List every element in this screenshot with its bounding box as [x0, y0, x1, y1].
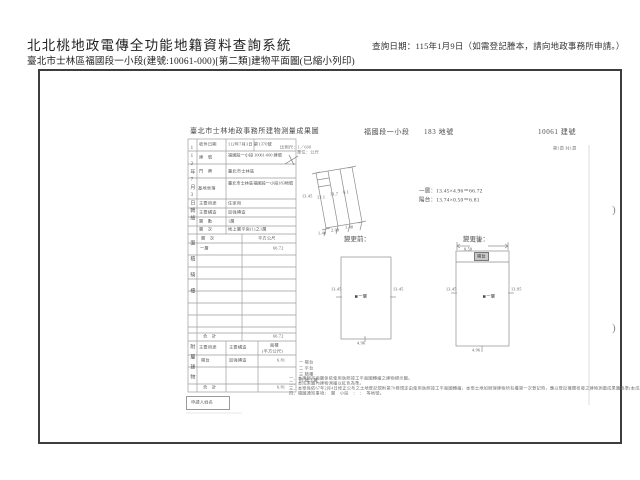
annex-use: 陽台 — [201, 358, 210, 363]
form-strip-area: 面積騎樓 — [189, 240, 195, 304]
form-row-value: 加強磚造 — [228, 210, 246, 215]
doc-building-number: 10061 建號 — [538, 127, 576, 137]
annex-header-area-unit: (平方公尺) — [262, 349, 283, 354]
after-dim-left: 13.45 — [446, 287, 457, 292]
annex-structure: 加強磚造 — [229, 358, 247, 363]
after-balcony-label: 陽台 — [477, 254, 486, 259]
before-floor-label: 一層 — [355, 294, 367, 299]
page-curl-mark: ) — [612, 322, 616, 334]
plot-dim-left: 13.45 — [302, 194, 313, 199]
form-row-value: 地上層平房(1)之1層 — [228, 227, 267, 232]
page-note: 第1頁 共1頁 — [553, 146, 577, 151]
doc-land-number: 183 地號 — [424, 127, 454, 137]
doc-title: 臺北市士林地政事務所建物測量成果圖 — [190, 126, 319, 136]
area-total-value: 66.72 — [273, 334, 284, 339]
page-curl-mark: ) — [612, 204, 616, 216]
form-row-value: 福國段一小段 10061-000 建號 — [228, 153, 295, 158]
floor-marker — [483, 295, 486, 298]
footnote-line: 一、本建物平面圖係依使用執照竣工平面圖轉繪之建物標示圖。 — [289, 376, 412, 381]
form-row-value: 112年7月3日 第1370號 — [228, 142, 272, 147]
annex-header-use: 主要用途 — [199, 345, 217, 350]
before-dim-left: 13.45 — [331, 287, 342, 292]
plot-bottom-dim: 1.48 — [345, 225, 353, 230]
system-title: 北北桃地政電傳全功能地籍資料查詢系統 — [27, 34, 292, 54]
form-row-value: 1層 — [228, 219, 235, 224]
form-row-label: 建 號 — [199, 155, 212, 160]
after-dim-bottom: 4.96 — [472, 348, 480, 353]
annex-header-area: 面積 — [270, 343, 279, 348]
area-calc-line: 陽台：13.74×0.50＝6.81 — [419, 197, 480, 203]
scale-note: 比例尺：1／600 — [280, 145, 311, 150]
plot-inner-dim: 13.1 — [317, 195, 325, 200]
area-floor-label: 一層 — [200, 246, 209, 251]
plot-inner-dim: 6.1 — [343, 190, 349, 195]
form-row-label: 層 次 — [199, 227, 212, 232]
area-total-label: 合 計 — [203, 334, 216, 339]
before-dim-right: 13.45 — [393, 287, 404, 292]
query-date: 查詢日期：115年1月9日（如需登記謄本，請向地政事務所申請。） — [372, 40, 625, 52]
form-row-label: 層 數 — [199, 219, 212, 224]
form-row-label: 主要用途 — [199, 201, 217, 206]
after-floor-label: 一層 — [483, 294, 495, 299]
form-row-value: 臺北市士林區福國段一小段183地號 — [228, 181, 295, 186]
applicant-label: 申請人姓名 — [191, 400, 213, 405]
annex-area: 6.81 — [277, 358, 285, 363]
after-dim-top: 4.96 — [473, 239, 481, 244]
applicant-box: 申請人姓名 — [186, 396, 230, 410]
annex-header-structure: 主要構造 — [229, 345, 247, 350]
page: 北北桃地政電傳全功能地籍資料查詢系統 查詢日期：115年1月9日（如需登記謄本，… — [0, 0, 640, 480]
footnote-line: 四、隨圖通知事項： 層 小段 ： ： 等地號。 — [289, 391, 384, 396]
form-row-label: 主要構造 — [199, 210, 217, 215]
plot-bottom-dim: 1.40 — [318, 231, 326, 236]
form-strip-annex: 附屬建物 — [189, 344, 195, 384]
area-calc-line: 一層：13.45×4.96＝66.72 — [419, 188, 483, 194]
form-row-value: 住家用 — [228, 201, 241, 206]
before-label: 變更前： — [344, 233, 370, 243]
after-dim-top2: 0.50 — [464, 247, 472, 252]
area-header-unit: 平方公尺 — [258, 236, 276, 241]
legend-item: 一 陽台 — [299, 360, 313, 365]
doc-section: 福國段一小段 — [364, 127, 410, 137]
after-dim-right: 13.95 — [511, 287, 522, 292]
document-subtitle: 臺北市士林區福國段一小段(建號:10061-000)[第二類]建物平面圖(已縮小… — [27, 53, 355, 67]
form-row-label: 基地坐落 — [198, 186, 216, 191]
form-strip-survey-date: 112年7月3日轉繪 — [189, 145, 195, 223]
legend-item: 二 平台 — [299, 366, 313, 371]
plot-bottom-dim: 2.08 — [331, 228, 339, 233]
unit-note: 單位：公尺 — [297, 150, 319, 155]
footnote-line: 二、本成果圖內建物測繪以紅色為準。 — [289, 381, 364, 386]
footnote-line: 三、本案係依67年2月4日修正公布之土地登記規則第70條規定由使用執照竣工平面圖… — [289, 386, 640, 391]
plot-inner-dim: 13.7 — [330, 192, 338, 197]
annex-total-value: 6.81 — [277, 385, 285, 390]
annex-total-label: 合 計 — [203, 385, 216, 390]
after-balcony-box: 陽台 — [474, 252, 489, 261]
before-dim-bottom: 4.96 — [357, 341, 365, 346]
form-row-value: 臺北市士林區 — [228, 169, 254, 174]
area-header-floor: 層 次 — [201, 236, 214, 241]
form-row-label: 收件日期 — [199, 142, 217, 147]
area-floor-value: 66.72 — [273, 246, 284, 251]
floor-marker — [355, 295, 358, 298]
form-row-label: 門 牌 — [199, 169, 212, 174]
